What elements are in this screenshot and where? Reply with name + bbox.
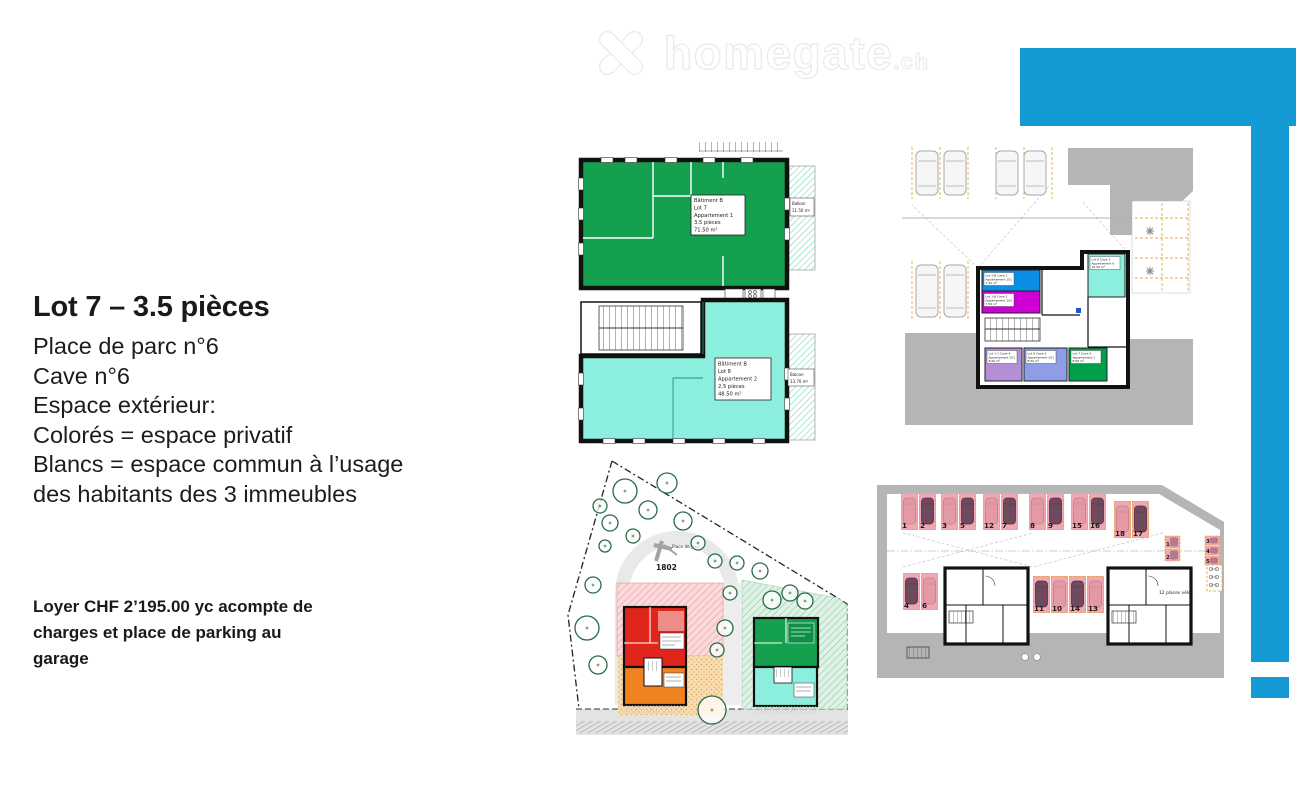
svg-text:8.50 m²: 8.50 m² (989, 359, 1002, 363)
svg-text:15: 15 (1072, 521, 1082, 530)
page-title: Lot 7 – 3.5 pièces (33, 291, 403, 324)
price-line-1: Loyer CHF 2’195.00 yc acompte de (33, 594, 313, 620)
bike-zone (1207, 565, 1222, 591)
blue-deco-square (1251, 677, 1289, 698)
garage-building-left (945, 568, 1028, 644)
svg-text:3: 3 (942, 521, 947, 530)
elevator-mark (1076, 308, 1081, 313)
svg-text:Lot 7: Lot 7 (694, 205, 707, 211)
svg-text:9: 9 (1048, 521, 1053, 530)
apartment-1-green (581, 160, 787, 288)
svg-text:7.50 m²: 7.50 m² (986, 281, 999, 285)
svg-text:4: 4 (904, 601, 909, 610)
stairwell (581, 302, 701, 354)
price-line-2: charges et place de parking au (33, 620, 313, 646)
blue-deco-bar (1251, 126, 1289, 662)
svg-text:13.70 m²: 13.70 m² (790, 379, 809, 384)
svg-text:4: 4 (1206, 549, 1210, 555)
garage-building-right (1108, 568, 1191, 644)
svg-text:Bâtiment B: Bâtiment B (694, 197, 723, 204)
svg-text:3: 3 (1206, 539, 1210, 545)
site-plan: Place de jeux 1802 (560, 453, 858, 753)
listing-description: Lot 7 – 3.5 pièces Place de parc n°6 Cav… (33, 291, 403, 510)
svg-text:11: 11 (1034, 604, 1044, 613)
svg-text:18: 18 (1115, 529, 1125, 538)
watermark-text: homegate.ch (664, 26, 930, 80)
svg-text:5: 5 (960, 521, 965, 530)
balcony-2-label: Balcon 13.70 m² (788, 369, 814, 386)
blue-deco-rect (1020, 48, 1296, 126)
svg-text:7.50 m²: 7.50 m² (986, 302, 999, 306)
svg-text:10: 10 (1052, 604, 1062, 613)
svg-text:17: 17 (1133, 529, 1143, 538)
svg-text:2: 2 (1166, 555, 1170, 561)
price-line-3: garage (33, 646, 313, 672)
svg-text:48.50 m²: 48.50 m² (718, 392, 742, 398)
svg-text:12: 12 (984, 521, 994, 530)
apartment-2-label: Bâtiment B Lot 8 Appartement 2 2.5 pièce… (715, 358, 771, 400)
svg-text:8.50 m²: 8.50 m² (1073, 359, 1086, 363)
outdoor-stalls (1132, 201, 1190, 293)
svg-text:7: 7 (1002, 521, 1007, 530)
balcony-1-label: Balkon 11.50 m² (790, 198, 814, 216)
svg-text:Balkon: Balkon (792, 201, 806, 206)
svg-text:2.5 pièces: 2.5 pièces (718, 383, 745, 390)
svg-text:Balcon: Balcon (790, 372, 804, 377)
svg-text:Lot 8: Lot 8 (718, 369, 731, 375)
info-line-parking: Place de parc n°6 (33, 332, 403, 362)
svg-text:Appartement 1: Appartement 1 (694, 213, 733, 219)
bike-label: 12 places vélos (1159, 589, 1194, 596)
svg-text:5: 5 (1206, 559, 1210, 565)
homegate-watermark: homegate.ch (592, 24, 930, 82)
svg-text:Bâtiment B: Bâtiment B (718, 361, 747, 368)
apartment-1-label: Bâtiment B Lot 7 Appartement 1 3.5 pièce… (691, 195, 745, 235)
rent-price-note: Loyer CHF 2’195.00 yc acompte de charges… (33, 594, 313, 672)
info-line-whites-2: des habitants des 3 immeubles (33, 480, 403, 510)
svg-text:10.50 m²: 10.50 m² (1092, 265, 1106, 269)
building-green-teal (754, 618, 818, 714)
cave-stairs (985, 318, 1040, 341)
svg-text:8.50 m²: 8.50 m² (1028, 359, 1041, 363)
svg-text:3.5 pièces: 3.5 pièces (694, 219, 721, 226)
garage-plan: 123512789151618174611101413 12345 12 pla… (873, 473, 1225, 688)
info-line-whites-1: Blancs = espace commun à l’usage (33, 450, 403, 480)
floor-plan-caves: Lot 1-B Cave 1Appartement 1017.50 m²Lot … (900, 143, 1197, 430)
floor-plan-apartments: Bâtiment B Lot 7 Appartement 1 3.5 pièce… (573, 138, 818, 456)
svg-text:1: 1 (902, 521, 907, 530)
svg-text:14: 14 (1070, 604, 1080, 613)
building-red-orange (624, 607, 686, 713)
info-line-colors: Colorés = espace privatif (33, 421, 403, 451)
info-line-cave: Cave n°6 (33, 362, 403, 392)
svg-text:6: 6 (922, 601, 927, 610)
svg-text:16: 16 (1090, 521, 1100, 530)
homegate-logo-icon (592, 24, 650, 82)
svg-text:11.50 m²: 11.50 m² (792, 208, 811, 213)
parcel-number: 1802 (656, 563, 677, 572)
svg-text:Appartement 2: Appartement 2 (718, 377, 757, 383)
svg-text:13: 13 (1088, 604, 1098, 613)
svg-text:2: 2 (920, 521, 925, 530)
info-line-exterior: Espace extérieur: (33, 391, 403, 421)
svg-text:71.50 m²: 71.50 m² (694, 228, 718, 234)
svg-text:1: 1 (1166, 542, 1170, 548)
dimension-ruler (699, 142, 783, 152)
svg-text:8: 8 (1030, 521, 1035, 530)
